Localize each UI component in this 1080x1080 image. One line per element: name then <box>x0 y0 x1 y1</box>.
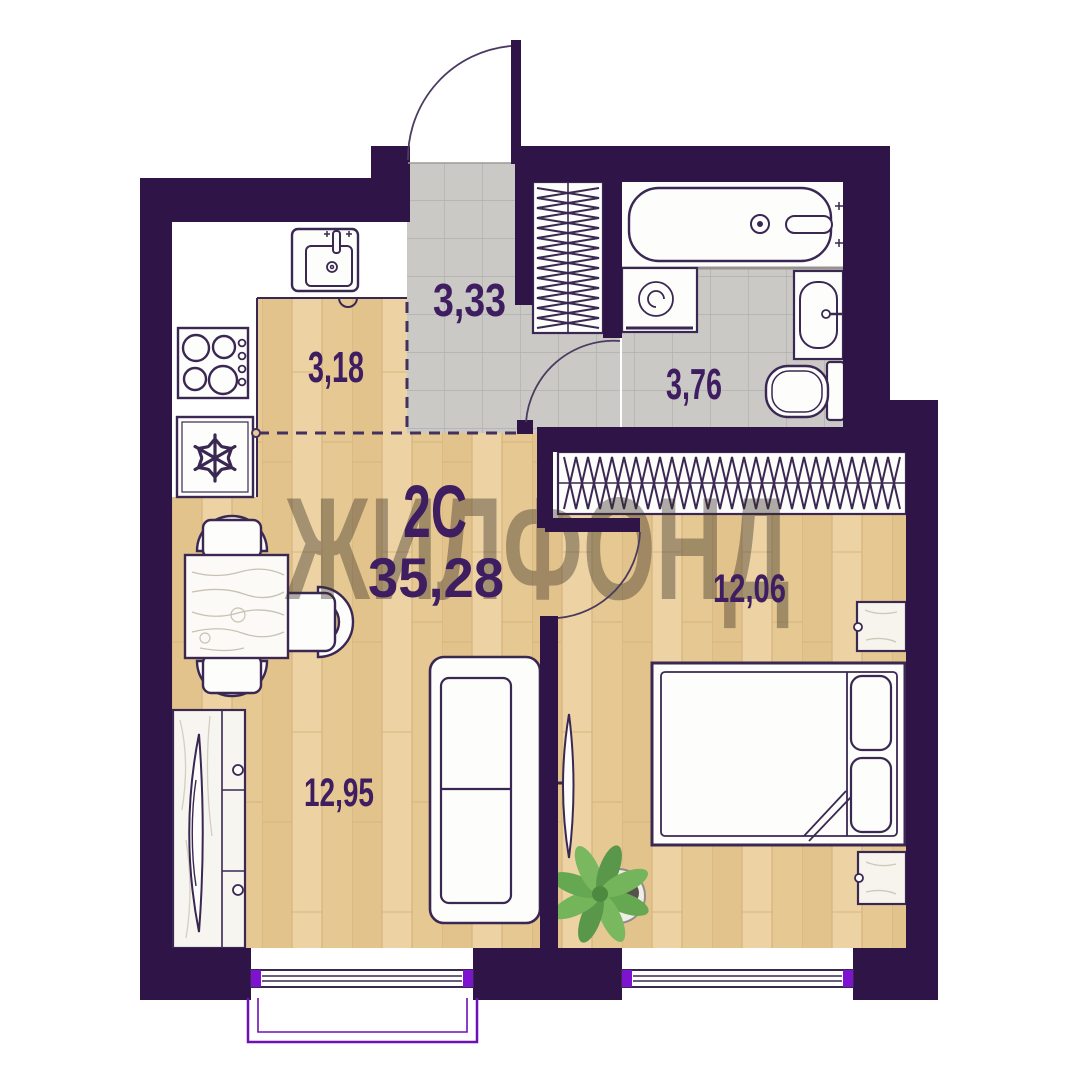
wall-bathroom-bottom <box>537 427 906 452</box>
bathtub-faucet <box>786 216 832 233</box>
nightstand-bottom <box>855 852 906 904</box>
fridge <box>177 417 253 497</box>
wall-living-bedroom <box>540 616 558 948</box>
chair-seat <box>203 655 261 693</box>
room-label-kitchen: 3,18 <box>308 343 364 392</box>
entry-door-leaf <box>511 40 521 164</box>
room-label-hallway: 3,33 <box>433 274 506 326</box>
wall-bathroom-left <box>603 182 622 338</box>
sofa <box>430 657 540 923</box>
tv-stand <box>173 710 245 948</box>
wall-top-right <box>521 146 890 182</box>
wall-entry-left <box>371 146 410 222</box>
wall-right-upper <box>843 146 890 400</box>
wall-left <box>140 178 172 1000</box>
dining-table <box>185 555 288 658</box>
stove <box>178 328 248 398</box>
faucet-icon <box>333 231 340 253</box>
wall-bottom-left <box>140 948 251 1000</box>
wall-right-lower <box>906 400 938 1000</box>
bathroom-sink <box>794 271 843 359</box>
wall-hall-closet-left <box>515 164 533 305</box>
living-window <box>251 950 473 998</box>
floor-plan-page: ЖИЛФОНД <box>0 0 1080 1080</box>
hallway-wardrobe <box>533 182 603 333</box>
chair-seat <box>203 520 261 558</box>
wall-kitchen-top <box>140 178 410 222</box>
bed <box>652 663 905 845</box>
bathtub <box>629 188 843 261</box>
pillow <box>851 676 891 750</box>
wall-bedroom-left-upper <box>537 427 553 528</box>
plan-total-area: 35,28 <box>368 546 504 609</box>
kitchen-sink <box>292 229 358 291</box>
nightstand-top <box>854 602 906 651</box>
wall-bottom-center <box>473 948 622 1000</box>
bedroom-door-leaf <box>545 518 640 532</box>
room-label-bedroom: 12,06 <box>713 567 786 611</box>
bedroom-window <box>622 950 853 998</box>
plan-type-label: 2С <box>403 470 467 553</box>
room-label-living: 12,95 <box>304 771 374 815</box>
room-label-bathroom: 3,76 <box>666 360 722 409</box>
washing-machine <box>622 268 697 332</box>
wall-bottom-right <box>853 948 938 1000</box>
bathroom-door-stop <box>517 420 533 434</box>
knob <box>233 885 243 895</box>
floor-plan: ЖИЛФОНД <box>0 0 1080 1080</box>
pillow <box>851 758 891 832</box>
knob <box>233 765 243 775</box>
toilet <box>766 362 844 420</box>
